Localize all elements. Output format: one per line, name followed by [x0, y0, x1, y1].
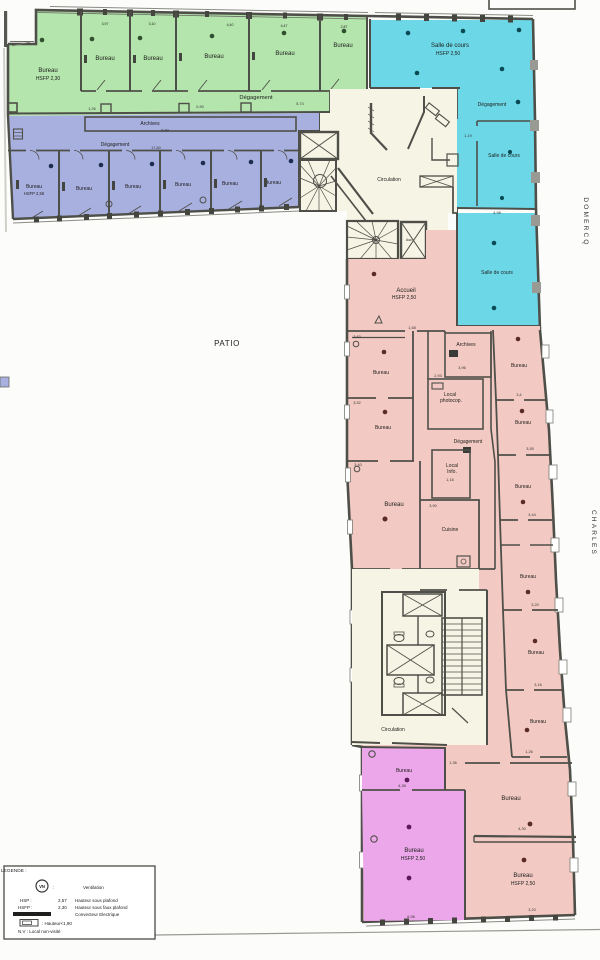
- svg-text:HSFP 2,56: HSFP 2,56: [24, 191, 45, 196]
- svg-text:Dégagement: Dégagement: [101, 142, 130, 148]
- svg-text:1,16: 1,16: [446, 478, 453, 482]
- svg-text:Accueil: Accueil: [396, 288, 415, 294]
- svg-text:Dégagement: Dégagement: [239, 95, 273, 101]
- svg-text:3,44: 3,44: [528, 513, 535, 517]
- svg-text:HSFP 2,50: HSFP 2,50: [436, 51, 461, 57]
- svg-text:2,87: 2,87: [341, 25, 348, 29]
- svg-text:3,4: 3,4: [516, 393, 521, 397]
- svg-text:Bureau: Bureau: [384, 502, 403, 508]
- svg-text:3,10: 3,10: [149, 22, 156, 26]
- svg-text:3,20: 3,20: [531, 603, 538, 607]
- svg-text:4,98: 4,98: [493, 211, 500, 215]
- svg-text:LEGENDE :: LEGENDE :: [1, 868, 27, 874]
- svg-text:Bureau: Bureau: [125, 184, 141, 190]
- svg-text:Bureau: Bureau: [520, 574, 536, 580]
- svg-text:3,40: 3,40: [354, 463, 361, 467]
- svg-text:Bureau: Bureau: [511, 363, 527, 369]
- svg-text:1,19: 1,19: [464, 134, 471, 138]
- svg-text:3,16: 3,16: [534, 683, 541, 687]
- svg-text:: Hauteur<1,90: : Hauteur<1,90: [42, 921, 72, 926]
- svg-text:Bureau: Bureau: [513, 873, 532, 879]
- svg-text:2,30: 2,30: [58, 905, 67, 910]
- svg-text:Bureau: Bureau: [515, 484, 531, 490]
- svg-text:4,47: 4,47: [281, 24, 288, 28]
- svg-text:CHARLES: CHARLES: [590, 510, 597, 556]
- svg-text:Salle de cours: Salle de cours: [481, 270, 513, 276]
- svg-text:Info.: Info.: [447, 469, 457, 475]
- svg-text:2,93: 2,93: [434, 374, 441, 378]
- svg-text:3,63: 3,63: [353, 335, 360, 339]
- svg-text:HSP :: HSP :: [20, 898, 32, 903]
- svg-text:Bureau: Bureau: [404, 848, 423, 854]
- svg-text:3,52: 3,52: [353, 401, 360, 405]
- svg-text:0,90: 0,90: [196, 105, 203, 109]
- svg-text:Dégagement: Dégagement: [478, 102, 507, 108]
- svg-text:HSFP :: HSFP :: [18, 905, 32, 910]
- svg-text:3,90: 3,90: [429, 504, 436, 508]
- svg-text:Bureau: Bureau: [528, 650, 544, 656]
- svg-text:Bureau: Bureau: [175, 182, 191, 188]
- svg-text:6,98: 6,98: [407, 915, 414, 919]
- svg-text:Bureau: Bureau: [76, 186, 92, 192]
- svg-text:Salle de cours: Salle de cours: [431, 43, 469, 49]
- svg-text:1,58: 1,58: [408, 326, 415, 330]
- svg-text:Bureau: Bureau: [333, 43, 352, 49]
- svg-text:Convecteur Electrique: Convecteur Electrique: [75, 912, 120, 917]
- svg-text:Bureau: Bureau: [275, 51, 294, 57]
- svg-text:4,40: 4,40: [227, 23, 234, 27]
- svg-text:2,57: 2,57: [58, 898, 67, 903]
- svg-text:Bureau: Bureau: [26, 184, 42, 190]
- svg-text:PATIO: PATIO: [214, 339, 240, 348]
- svg-text:1,26: 1,26: [88, 107, 95, 111]
- svg-text:4,30: 4,30: [518, 827, 525, 831]
- svg-text:3,20: 3,20: [528, 908, 535, 912]
- svg-text:HSFP 2,30: HSFP 2,30: [36, 76, 61, 82]
- svg-text:HSFP 2,50: HSFP 2,50: [511, 881, 536, 887]
- svg-text:Hauteur sous faux plafond: Hauteur sous faux plafond: [75, 905, 128, 910]
- svg-text:6,83: 6,83: [161, 129, 168, 133]
- svg-text:Bureau: Bureau: [95, 56, 114, 62]
- svg-text:3,55: 3,55: [526, 447, 533, 451]
- svg-text:5,74: 5,74: [296, 102, 303, 106]
- svg-text:HSFP 2,50: HSFP 2,50: [392, 295, 417, 301]
- svg-text:Bureau: Bureau: [396, 768, 412, 774]
- svg-text:Bureau: Bureau: [265, 180, 281, 186]
- svg-text:Circulation: Circulation: [377, 177, 401, 183]
- svg-text:Asc.: Asc.: [406, 238, 413, 242]
- svg-text::: :: [53, 885, 54, 890]
- svg-text:N.V : Local non-visité: N.V : Local non-visité: [18, 929, 61, 934]
- svg-text:1,26: 1,26: [525, 750, 532, 754]
- svg-text:1,36: 1,36: [449, 761, 456, 765]
- svg-text:3,96: 3,96: [458, 366, 465, 370]
- svg-text:HSFP 2,50: HSFP 2,50: [401, 856, 426, 862]
- svg-text:Dégagement: Dégagement: [454, 439, 483, 445]
- svg-text:4,38: 4,38: [398, 784, 405, 788]
- svg-text:Salle de cours: Salle de cours: [488, 153, 520, 159]
- svg-text:Bureau: Bureau: [373, 370, 389, 376]
- svg-text:Bureau: Bureau: [38, 68, 57, 74]
- svg-text:Bureau: Bureau: [530, 719, 546, 725]
- svg-text:Cuisine: Cuisine: [442, 527, 459, 533]
- svg-text:Bureau: Bureau: [501, 796, 520, 802]
- svg-text:DOMERCQ: DOMERCQ: [582, 197, 589, 246]
- svg-text:3,97: 3,97: [102, 22, 109, 26]
- svg-text:Hauteur sous plafond: Hauteur sous plafond: [75, 898, 118, 903]
- svg-text:Bureau: Bureau: [222, 181, 238, 187]
- svg-text:Bureau: Bureau: [204, 54, 223, 60]
- svg-text:Archives: Archives: [140, 121, 160, 127]
- svg-text:Bureau: Bureau: [143, 56, 162, 62]
- svg-text:17,80: 17,80: [151, 146, 161, 150]
- svg-text:VN: VN: [39, 884, 45, 889]
- svg-text:photocop.: photocop.: [440, 398, 462, 404]
- svg-text:Ventilation: Ventilation: [83, 885, 104, 890]
- svg-text:Bureau: Bureau: [375, 425, 391, 431]
- svg-text:Archives: Archives: [456, 342, 476, 348]
- svg-text:Bureau: Bureau: [515, 420, 531, 426]
- svg-text:Circulation: Circulation: [381, 727, 405, 733]
